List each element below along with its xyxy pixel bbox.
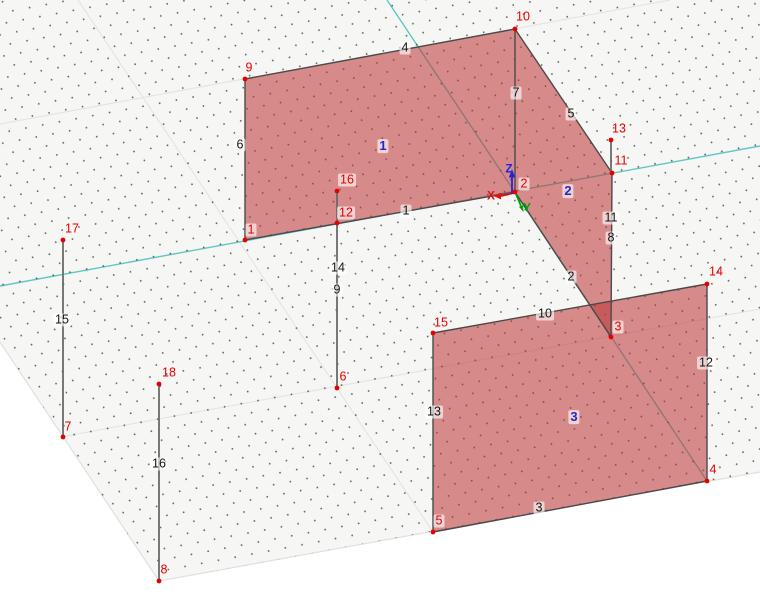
node-marker-18[interactable] [157, 382, 162, 387]
node-marker-9[interactable] [243, 77, 248, 82]
node-marker-8[interactable] [157, 579, 162, 584]
node-marker-2[interactable] [513, 190, 518, 195]
node-marker-7[interactable] [61, 435, 66, 440]
node-marker-1[interactable] [243, 238, 248, 243]
node-marker-12[interactable] [335, 221, 340, 226]
node-marker-10[interactable] [513, 27, 518, 32]
node-marker-15[interactable] [431, 331, 436, 336]
node-marker-3[interactable] [609, 335, 614, 340]
model-viewport[interactable]: 1234567891011121314151612312345678910111… [0, 0, 760, 610]
node-marker-11[interactable] [610, 171, 615, 176]
node-marker-13[interactable] [609, 138, 614, 143]
node-marker-14[interactable] [705, 282, 710, 287]
node-marker-16[interactable] [335, 189, 340, 194]
node-marker-5[interactable] [431, 530, 436, 535]
model-line-11-8[interactable] [611, 173, 612, 337]
node-marker-17[interactable] [61, 238, 66, 243]
scene-canvas [0, 0, 760, 610]
node-marker-6[interactable] [335, 386, 340, 391]
node-marker-4[interactable] [705, 479, 710, 484]
